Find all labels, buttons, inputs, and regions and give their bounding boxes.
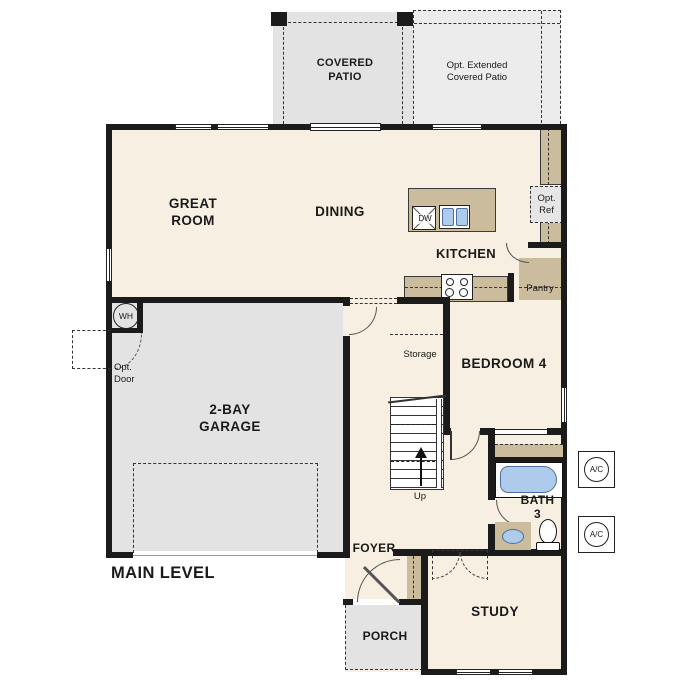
burner-4 <box>459 288 468 297</box>
ac-unit-2: A/C <box>578 516 615 553</box>
window-greatroom-top-2 <box>217 124 269 130</box>
wall-hall-bath-lower <box>488 524 495 552</box>
opt-extended-patio-inner-line-v <box>541 11 542 123</box>
ac-unit-1-label: A/C <box>590 465 603 474</box>
up-arrow-head <box>415 447 427 458</box>
opt-refrigerator: Opt. Ref <box>530 186 563 223</box>
bedroom4-label: BEDROOM 4 <box>443 356 565 373</box>
garage-label: 2-BAY GARAGE <box>168 402 292 436</box>
bathtub <box>500 466 557 493</box>
dishwasher: DW <box>412 206 436 230</box>
foyer-label: FOYER <box>346 541 402 556</box>
garage-door-dashed-area <box>133 463 318 553</box>
wall-hall-top <box>397 297 445 304</box>
ac-unit-2-circle: A/C <box>584 522 609 547</box>
bath3-label: BATH 3 <box>510 494 565 522</box>
patio-post-left <box>271 12 287 26</box>
burner-3 <box>445 288 454 297</box>
ac-unit-1: A/C <box>578 451 615 488</box>
stairs-dash-2 <box>391 461 435 462</box>
dining-label: DINING <box>295 204 385 221</box>
great-room-label: GREAT ROOM <box>143 196 243 230</box>
opt-extended-patio-label: Opt. Extended Covered Patio <box>421 60 533 84</box>
bedroom4-door-leaf <box>450 431 452 460</box>
pantry-wall-left <box>508 273 514 302</box>
dishwasher-label: DW <box>413 214 436 224</box>
study-label: STUDY <box>444 604 546 621</box>
up-arrow-line <box>420 456 422 486</box>
kitchen-counter-right-upper <box>540 128 562 185</box>
bath-sink <box>502 529 524 544</box>
kitchen-sink <box>439 205 470 229</box>
opt-door-stoop <box>72 330 111 369</box>
burner-2 <box>460 278 468 286</box>
bedroom-closet-shelf <box>495 444 563 457</box>
foyer-closet-dash <box>413 556 414 603</box>
up-label: Up <box>406 491 434 503</box>
stairs-handrail <box>436 399 442 488</box>
wall-hall-bath-upper <box>488 428 495 500</box>
sliding-door-patio <box>310 123 381 131</box>
opt-extended-patio-inner-line <box>414 23 560 24</box>
wall-study-bottom <box>425 669 567 675</box>
pantry-label: Pantry <box>515 283 565 295</box>
wall-bedroom-hall-c <box>547 428 567 435</box>
porch-label: PORCH <box>349 629 421 644</box>
wall-study-left <box>421 549 428 675</box>
window-study-2 <box>498 669 533 675</box>
burner-1 <box>446 278 454 286</box>
covered-patio-label: COVERED PATIO <box>295 57 395 85</box>
water-heater-label: WH <box>119 311 133 321</box>
sink-basin-left <box>442 208 454 226</box>
ac-unit-1-circle: A/C <box>584 457 609 482</box>
bedroom-closet-opening <box>495 429 547 435</box>
sink-basin-right <box>456 208 468 226</box>
water-heater: WH <box>113 303 139 329</box>
toilet-tank <box>536 542 560 551</box>
wall-garage-right <box>343 297 350 558</box>
patio-post-right <box>397 12 413 26</box>
dining-hall-cased-opening <box>350 298 397 304</box>
window-study-1 <box>456 669 491 675</box>
toilet-bowl <box>539 519 557 544</box>
window-bedroom4 <box>561 387 567 423</box>
main-level-title: MAIN LEVEL <box>111 563 281 584</box>
foyer-closet <box>407 556 421 603</box>
kitchen-label: KITCHEN <box>416 246 516 262</box>
ac-unit-2-label: A/C <box>590 530 603 539</box>
window-greatroom-left <box>106 248 112 282</box>
storage-label: Storage <box>396 349 444 361</box>
opt-ref-label: Opt. Ref <box>538 193 556 217</box>
opt-door-label: Opt. Door <box>114 362 156 386</box>
window-kitchen-top <box>432 124 482 130</box>
stairs-dash-1 <box>391 424 435 425</box>
window-greatroom-top-1 <box>175 124 212 130</box>
floor-plan: COVERED PATIO Opt. Extended Covered Pati… <box>0 0 687 687</box>
storage-dash-line <box>390 334 443 335</box>
